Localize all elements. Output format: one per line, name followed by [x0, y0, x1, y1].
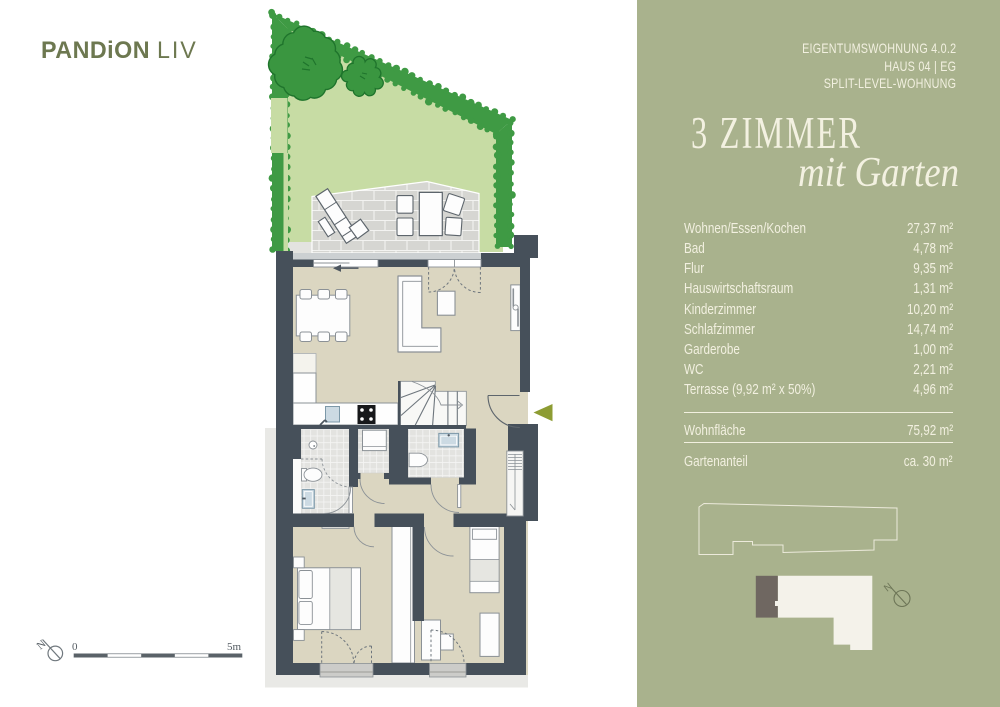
svg-text:N: N: [35, 638, 49, 652]
svg-text:5m: 5m: [227, 641, 242, 653]
svg-text:0: 0: [72, 641, 78, 653]
svg-text:N: N: [882, 581, 894, 594]
